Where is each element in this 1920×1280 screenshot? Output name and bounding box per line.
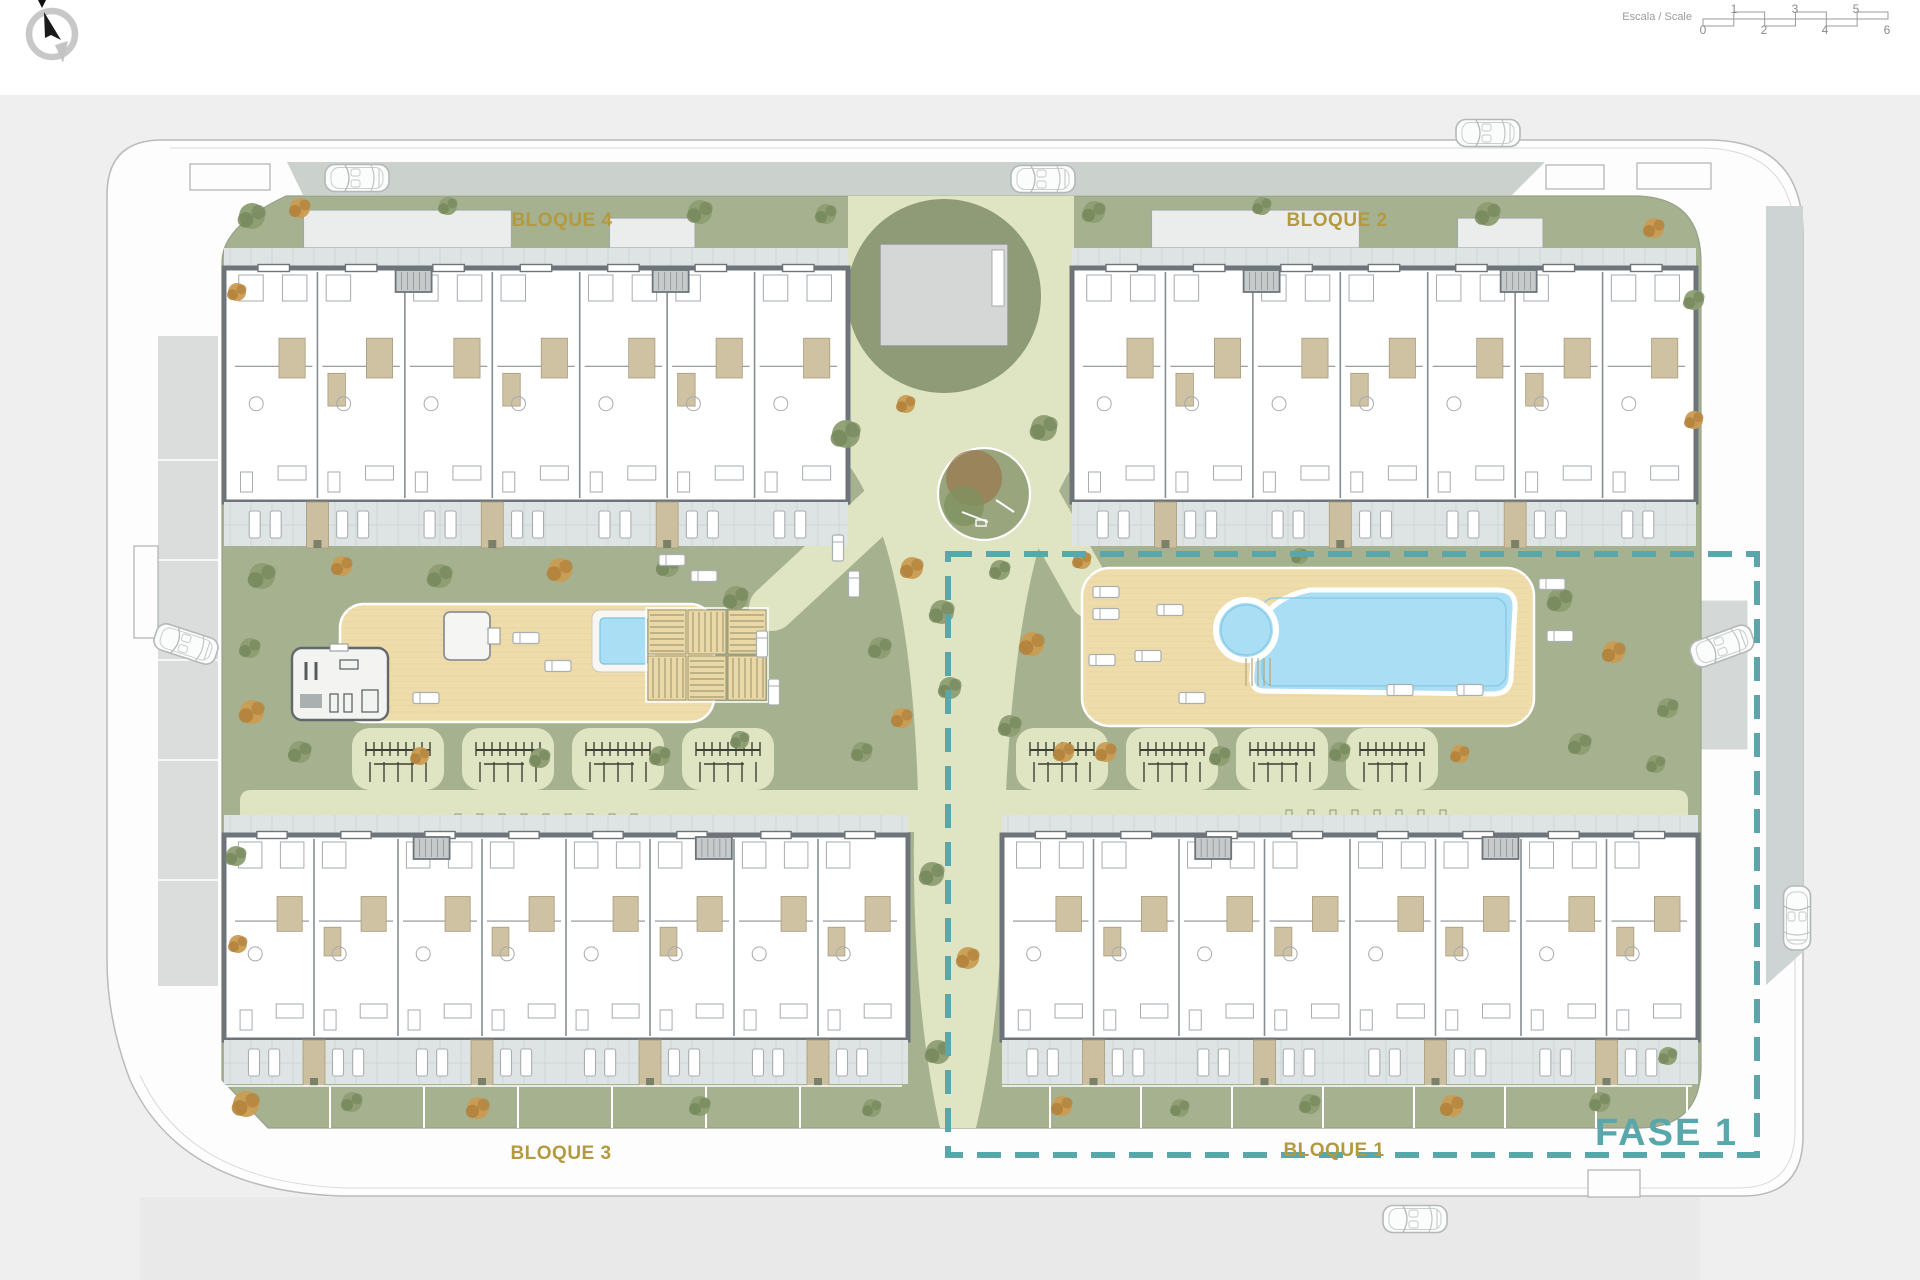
bloque-1-building xyxy=(1002,815,1698,1086)
scale-tick-0: 0 xyxy=(1700,23,1707,37)
bloque-2-building xyxy=(1072,210,1696,548)
scale-tick-1: 1 xyxy=(1731,2,1738,16)
bloque-1-label: BLOQUE 1 xyxy=(1283,1140,1384,1162)
scale-tick-3: 3 xyxy=(1792,2,1799,16)
bloque-3-label: BLOQUE 3 xyxy=(510,1143,611,1165)
bloque-2-label: BLOQUE 2 xyxy=(1286,210,1387,232)
site-plan-canvas: BLOQUE 4 BLOQUE 2 BLOQUE 3 BLOQUE 1 FASE… xyxy=(0,0,1920,1280)
parked-car xyxy=(325,165,389,192)
scale-bar-label: Escala / Scale xyxy=(1622,11,1692,23)
gym-pavilion xyxy=(292,644,388,720)
plan-root xyxy=(0,0,1920,1280)
playground xyxy=(938,448,1030,540)
parked-car xyxy=(1456,120,1520,147)
site-plan-drawing xyxy=(0,0,1920,1280)
scale-tick-4: 4 xyxy=(1822,23,1829,37)
swimming-pool xyxy=(1252,590,1515,694)
central-plaza xyxy=(847,199,1041,393)
parked-car xyxy=(1383,1206,1447,1233)
bloque-4-label: BLOQUE 4 xyxy=(511,210,612,232)
scale-tick-5: 5 xyxy=(1853,2,1860,16)
scale-tick-2: 2 xyxy=(1761,23,1768,37)
fase-1-label: FASE 1 xyxy=(1595,1112,1738,1155)
bloque-3-building xyxy=(224,815,908,1086)
bloque-4-building xyxy=(224,210,848,548)
scale-tick-6: 6 xyxy=(1884,23,1891,37)
parked-car xyxy=(1011,166,1075,193)
parked-car xyxy=(1784,886,1811,950)
pool-deck-east xyxy=(1082,568,1534,726)
